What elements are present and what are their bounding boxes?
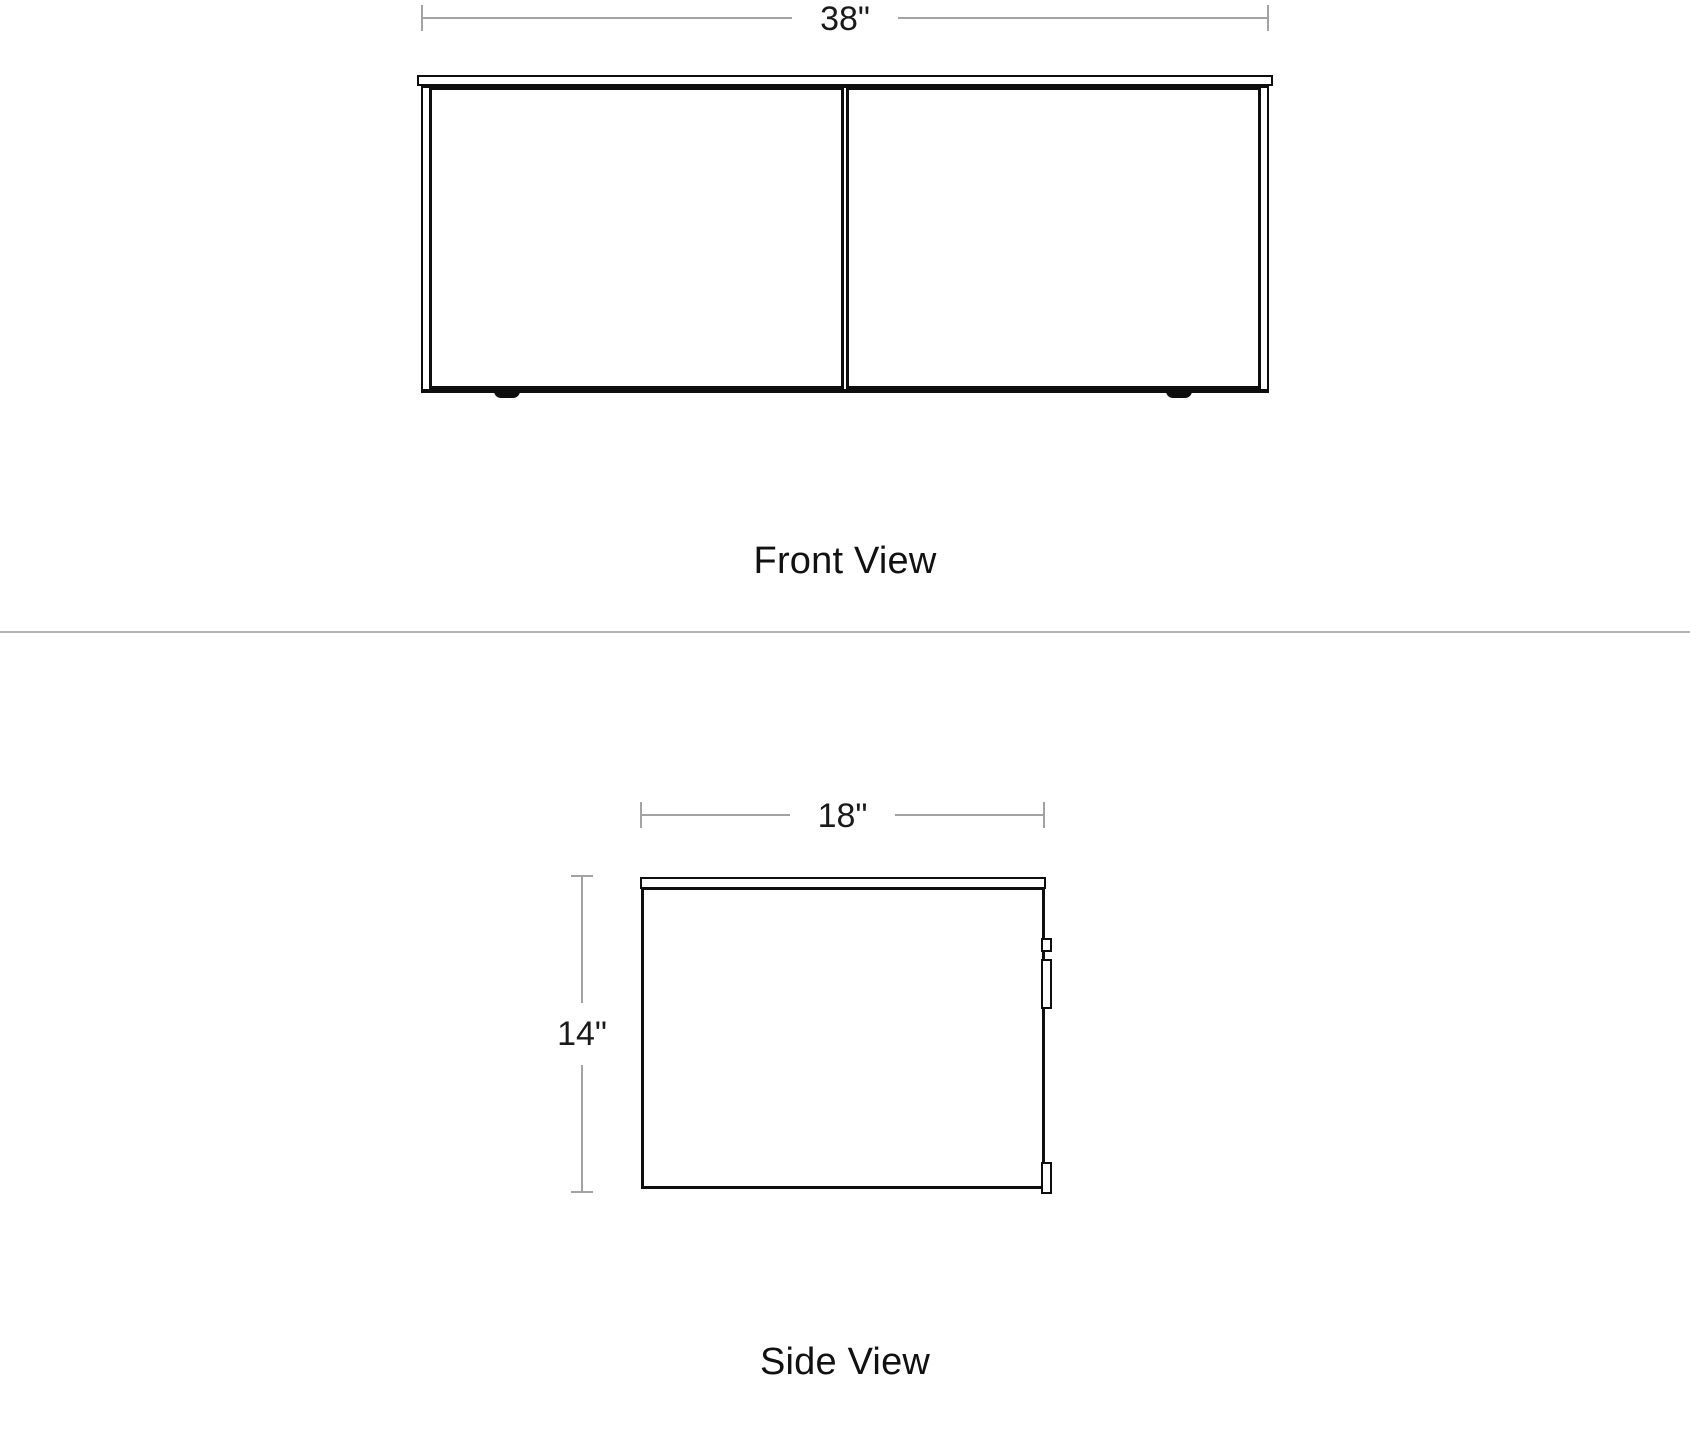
side-door-hinge-upper [1041, 959, 1052, 1009]
side-view-caption: Side View [0, 1341, 1690, 1384]
side-cabinet-body [641, 887, 1045, 1189]
front-cabinet-left-door [429, 87, 844, 389]
side-height-dimension-line: 14" [571, 875, 593, 1193]
front-cabinet-left-foot [494, 391, 520, 398]
dimension-drawing-page: 38" Front View 18" [0, 0, 1690, 1434]
dimension-tick [571, 1191, 593, 1193]
dimension-tick [1267, 5, 1269, 31]
dimension-line-segment [423, 17, 792, 19]
dimension-line-segment [895, 814, 1043, 816]
side-depth-dimension-line: 18" [640, 802, 1045, 828]
dimension-line-segment [581, 877, 583, 1003]
dimension-line-segment [898, 17, 1267, 19]
side-door-hinge-lower [1041, 1162, 1052, 1194]
front-width-dimension-line: 38" [421, 5, 1269, 31]
front-cabinet-right-door [846, 87, 1261, 389]
dimension-line-segment [642, 814, 790, 816]
side-height-dimension-label: 14" [557, 1003, 607, 1065]
section-divider [0, 631, 1690, 633]
front-view-caption: Front View [0, 540, 1690, 583]
front-width-dimension-label: 38" [792, 2, 898, 36]
side-depth-dimension-label: 18" [790, 799, 896, 833]
dimension-line-segment [581, 1065, 583, 1191]
side-door-catch [1041, 938, 1052, 952]
dimension-tick [1043, 802, 1045, 828]
front-cabinet-right-foot [1166, 391, 1192, 398]
